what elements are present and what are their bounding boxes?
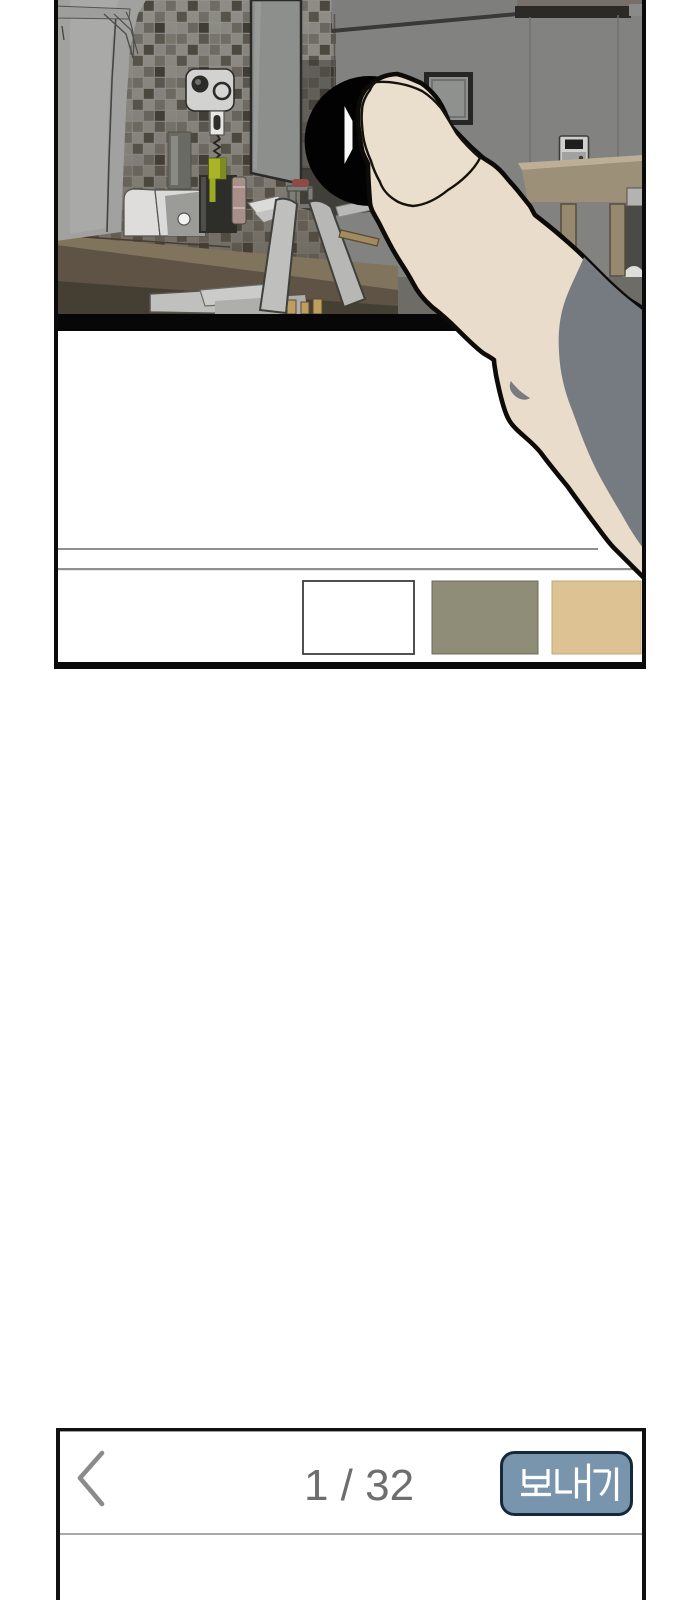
svg-text:1 / 32: 1 / 32: [304, 1461, 414, 1510]
